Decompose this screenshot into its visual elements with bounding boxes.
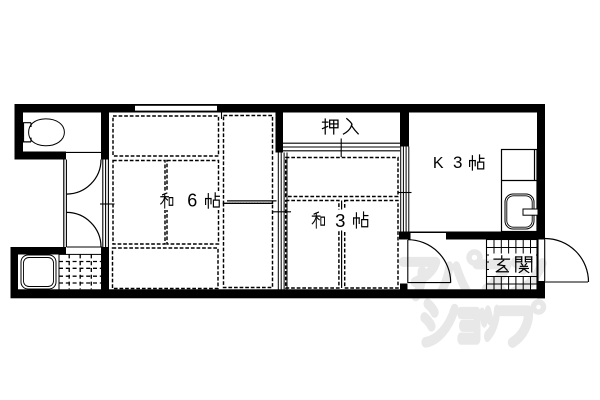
svg-text:6: 6 xyxy=(187,191,197,211)
svg-text:K: K xyxy=(433,155,444,172)
svg-text:3: 3 xyxy=(335,210,345,231)
svg-text:3: 3 xyxy=(453,153,462,172)
